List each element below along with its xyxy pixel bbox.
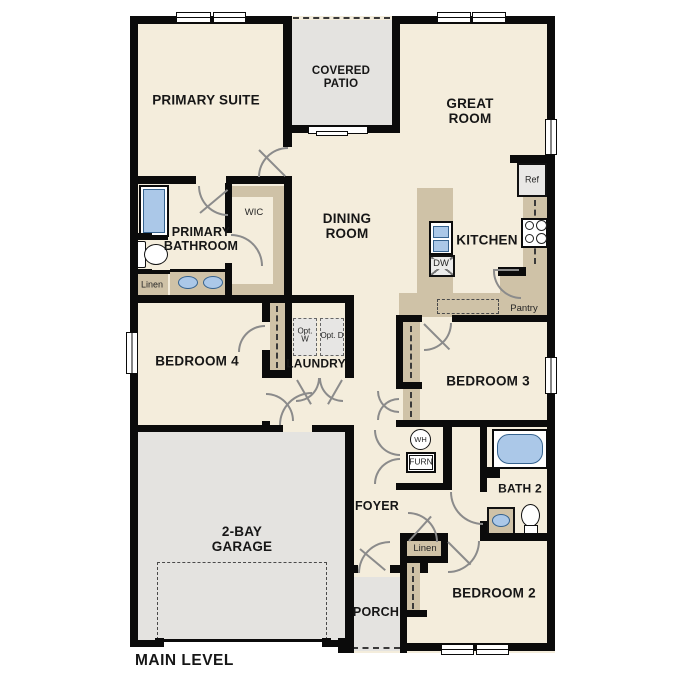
floor-plan: PRIMARY SUITE COVERED PATIO GREAT ROOM P… bbox=[0, 0, 687, 687]
room-label-bath2: BATH 2 bbox=[497, 482, 543, 495]
fixture-label-linen-hall: Linen bbox=[407, 544, 443, 554]
wall bbox=[420, 563, 428, 573]
room-label-great-room: GREAT ROOM bbox=[430, 96, 510, 126]
wall bbox=[345, 302, 354, 378]
wall bbox=[130, 425, 283, 432]
fixture-label-dishwasher: DW bbox=[432, 259, 450, 269]
wall bbox=[396, 483, 452, 490]
window bbox=[441, 644, 474, 655]
garage-door-jamb bbox=[322, 638, 331, 647]
wall bbox=[405, 610, 427, 617]
bath2-sink bbox=[492, 514, 510, 527]
wall bbox=[547, 16, 555, 651]
window bbox=[213, 12, 246, 23]
vanity-sink-left bbox=[178, 276, 198, 289]
window bbox=[476, 644, 509, 655]
room-label-bedroom4: BEDROOM 4 bbox=[155, 353, 239, 368]
room-label-primary-suite: PRIMARY SUITE bbox=[151, 92, 261, 107]
wall bbox=[480, 533, 555, 541]
burner-icon bbox=[536, 220, 547, 231]
wall bbox=[452, 420, 555, 427]
wall bbox=[338, 638, 354, 653]
window bbox=[545, 357, 557, 394]
fixture-label-opt-dryer: Opt. D bbox=[320, 332, 344, 340]
room-label-porch: PORCH bbox=[353, 605, 399, 619]
toilet-bowl-bath2 bbox=[521, 504, 540, 527]
wall bbox=[452, 315, 555, 322]
room-label-dining-room: DINING ROOM bbox=[302, 211, 392, 241]
wall bbox=[225, 263, 232, 303]
fixture-label-pantry: Pantry bbox=[499, 304, 549, 314]
room-label-garage: 2-BAY GARAGE bbox=[192, 524, 292, 554]
wall bbox=[130, 176, 196, 184]
coat-closet-rod bbox=[410, 392, 412, 417]
vanity-sink-right bbox=[203, 276, 223, 289]
bedroom4-closet-rod bbox=[276, 306, 278, 368]
garage-door-threshold bbox=[160, 639, 328, 642]
room-label-foyer: FOYER bbox=[355, 499, 399, 513]
window bbox=[472, 12, 506, 23]
fixture-label-refrigerator: Ref bbox=[517, 175, 547, 184]
burner-icon bbox=[536, 233, 547, 244]
wall bbox=[396, 382, 422, 389]
sink-basin-top bbox=[433, 226, 449, 238]
patio-edge-dashed bbox=[293, 17, 390, 20]
wall bbox=[262, 302, 270, 322]
window bbox=[545, 119, 557, 155]
room-label-bedroom3: BEDROOM 3 bbox=[446, 373, 530, 388]
patio-slider-panel bbox=[316, 131, 348, 136]
linen-edge bbox=[134, 270, 170, 274]
room-label-kitchen: KITCHEN bbox=[456, 232, 517, 247]
room-label-bedroom2: BEDROOM 2 bbox=[452, 585, 536, 600]
wic-shelf-right bbox=[273, 186, 284, 295]
fixture-label-furnace: FURN bbox=[409, 458, 433, 467]
wall bbox=[262, 421, 270, 432]
wall bbox=[443, 420, 452, 490]
fixture-label-linen-bath: Linen bbox=[136, 280, 168, 289]
bedroom3-closet-rod bbox=[410, 326, 412, 378]
wall bbox=[226, 176, 292, 184]
wall bbox=[510, 155, 555, 163]
room-label-primary-bathroom: PRIMARY BATHROOM bbox=[141, 225, 261, 253]
porch-edge-dashed bbox=[352, 647, 400, 650]
fixture-label-water-heater: WH bbox=[414, 436, 427, 444]
wall bbox=[480, 427, 487, 492]
window bbox=[126, 332, 138, 374]
sink-basin-bottom bbox=[433, 240, 449, 252]
plan-title: MAIN LEVEL bbox=[135, 652, 234, 669]
garage-door-jamb bbox=[155, 638, 164, 647]
wic-shelf-bottom bbox=[231, 284, 284, 295]
wall bbox=[400, 533, 407, 653]
vanity-edge bbox=[170, 269, 228, 272]
wall bbox=[396, 315, 403, 388]
window bbox=[176, 12, 211, 23]
room-label-laundry: LAUNDRY bbox=[286, 357, 346, 370]
wall bbox=[390, 565, 407, 573]
door-leaf-pantry bbox=[493, 269, 519, 271]
room-label-covered-patio: COVERED PATIO bbox=[301, 65, 381, 91]
window bbox=[437, 12, 471, 23]
room-label-wic: WIC bbox=[234, 208, 274, 218]
burner-icon bbox=[525, 221, 534, 230]
burner-icon bbox=[525, 234, 534, 243]
wall bbox=[284, 177, 292, 302]
wall bbox=[392, 16, 400, 133]
wall bbox=[130, 295, 354, 303]
fixture-label-opt-washer: Opt. W bbox=[293, 328, 317, 345]
garage-door-dashed bbox=[157, 562, 327, 640]
bedroom2-closet-rod bbox=[412, 567, 414, 609]
bathtub-basin bbox=[497, 434, 543, 464]
upper-cabinet-dashed bbox=[437, 299, 499, 314]
